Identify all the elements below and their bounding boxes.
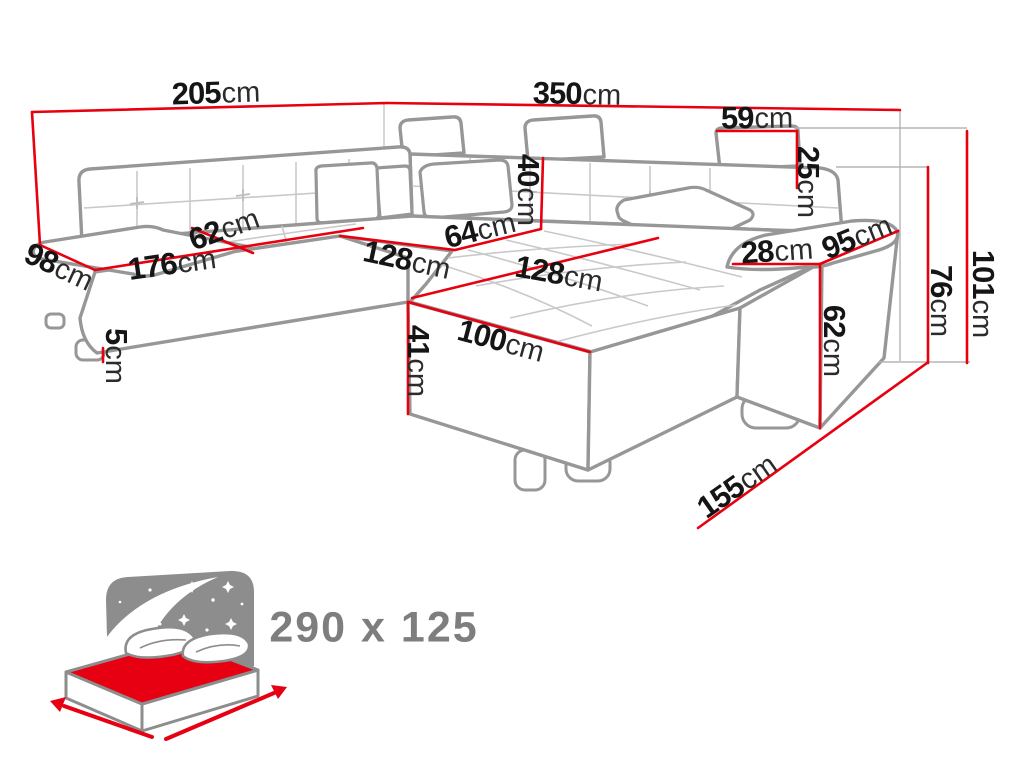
dim-backrest-height: 76cm (925, 265, 957, 337)
dim-armrest-height: 62cm (818, 305, 850, 377)
dim-leg-height: 5cm (100, 328, 132, 384)
dim-back-width-left: 205cm (171, 75, 260, 110)
dim-armrest-width: 28cm (740, 233, 814, 270)
dim-total-height: 101cm (967, 250, 999, 338)
sleeping-area-size: 290 x 125 (269, 607, 478, 650)
dim-backrest-depth: 40cm (512, 154, 544, 226)
dim-headrest-height: 25cm (792, 146, 824, 218)
dim-headrest-width: 59cm (721, 101, 794, 134)
dim-seat-height: 41cm (402, 325, 434, 397)
sleeping-function-icon (50, 571, 287, 739)
sofa-dimension-diagram: 205cm 350cm 59cm 25cm 101cm 76cm 62cm 95… (0, 0, 1024, 768)
sofa-line-art (0, 0, 1024, 768)
dim-back-width-right: 350cm (533, 77, 622, 111)
bed-pillows (126, 627, 250, 662)
